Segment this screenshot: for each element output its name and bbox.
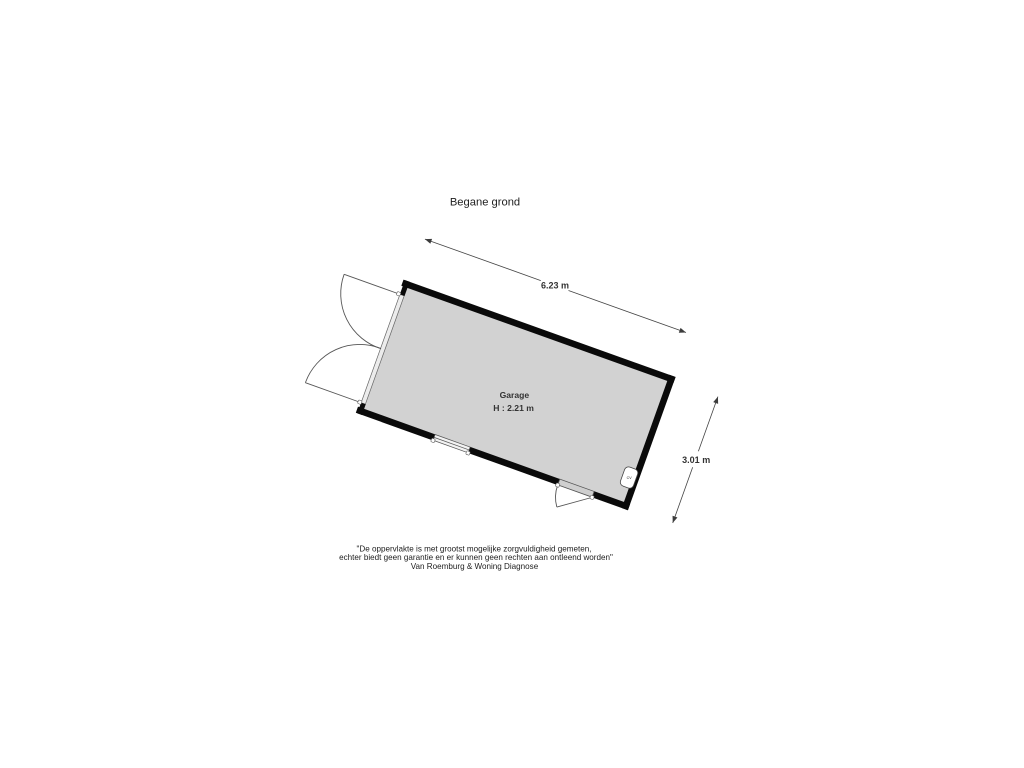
svg-text:"De oppervlakte is met grootst: "De oppervlakte is met grootst mogelijke… — [356, 544, 591, 553]
svg-text:echter biedt geen garantie en: echter biedt geen garantie en er kunnen … — [339, 553, 613, 562]
svg-text:Begane grond: Begane grond — [450, 196, 520, 208]
svg-text:6.23 m: 6.23 m — [541, 281, 569, 291]
svg-text:Van Roemburg & Woning Diagnose: Van Roemburg & Woning Diagnose — [411, 562, 539, 571]
svg-text:CV: CV — [627, 476, 633, 480]
svg-text:Garage: Garage — [500, 390, 530, 400]
svg-text:H : 2.21 m: H : 2.21 m — [493, 403, 534, 413]
svg-text:3.01 m: 3.01 m — [682, 455, 710, 465]
